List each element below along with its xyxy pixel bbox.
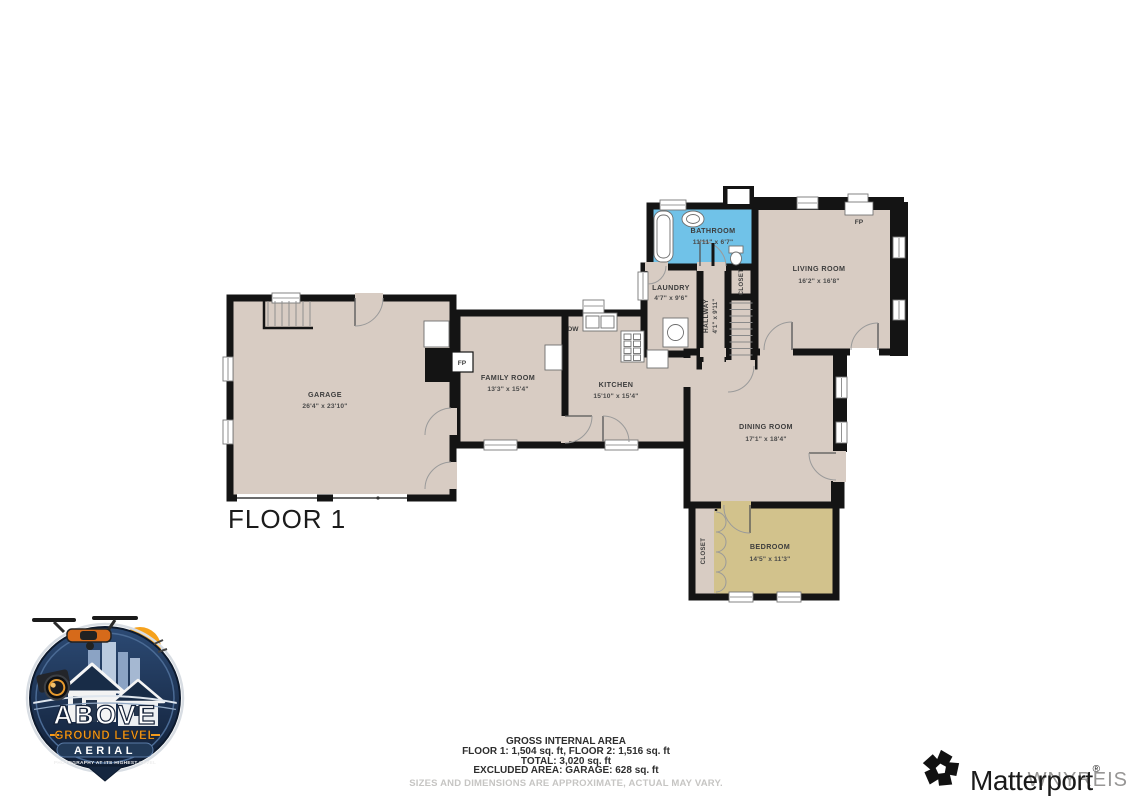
dims-laundry: 4'7" x 9'6" bbox=[654, 295, 688, 302]
label-hallway: HALLWAY bbox=[703, 299, 710, 333]
matterport-logo: Matterport® bbox=[920, 748, 1099, 800]
window bbox=[893, 300, 905, 320]
kitchen-sink bbox=[583, 313, 617, 331]
label-garage: GARAGE bbox=[308, 390, 342, 399]
dims-garage: 26'4" x 23'10" bbox=[302, 403, 347, 410]
agl-word-sub: GROUND LEVEL bbox=[55, 730, 156, 742]
agl-word-aerial: AERIAL bbox=[74, 745, 136, 757]
dims-bedroom: 14'5" x 11'3" bbox=[750, 556, 791, 563]
area-summary: GROSS INTERNAL AREA FLOOR 1: 1,504 sq. f… bbox=[306, 737, 826, 789]
matterport-pinwheel-icon bbox=[920, 748, 962, 790]
garage-door-wall bbox=[237, 494, 407, 502]
washer bbox=[663, 318, 688, 347]
toilet bbox=[729, 246, 743, 265]
label-closet-hall: CLOSET bbox=[739, 269, 745, 296]
label-family: FAMILY ROOM bbox=[481, 373, 535, 382]
summary-disclaimer: SIZES AND DIMENSIONS ARE APPROXIMATE, AC… bbox=[306, 779, 826, 789]
window bbox=[638, 272, 648, 300]
window bbox=[223, 357, 233, 381]
svg-text:FP: FP bbox=[855, 219, 864, 226]
floorplan-page: FP FP bbox=[0, 0, 1132, 800]
svg-text:FP: FP bbox=[458, 360, 467, 367]
dims-bathroom: 11'11" x 6'7" bbox=[693, 239, 734, 246]
dims-living: 16'2" x 16'8" bbox=[798, 278, 839, 285]
dims-hallway: 4'1" x 9'11" bbox=[712, 299, 719, 334]
window bbox=[583, 300, 604, 313]
summary-excluded: EXCLUDED AREA: GARAGE: 628 sq. ft bbox=[306, 766, 826, 776]
window bbox=[729, 592, 753, 602]
room-bedroom-fill bbox=[716, 509, 833, 594]
dims-dining: 17'1" x 18'4" bbox=[745, 436, 786, 443]
label-bathroom: BATHROOM bbox=[691, 226, 736, 235]
window bbox=[660, 200, 686, 210]
dims-family: 13'3" x 15'4" bbox=[487, 386, 528, 393]
fridge bbox=[647, 350, 668, 368]
label-kitchen: KITCHEN bbox=[599, 380, 634, 389]
label-laundry: LAUNDRY bbox=[652, 283, 690, 292]
window bbox=[605, 440, 638, 450]
registered-mark: ® bbox=[1093, 764, 1100, 775]
stove bbox=[621, 331, 644, 362]
window bbox=[777, 592, 801, 602]
window bbox=[836, 422, 847, 443]
fireplace-family: FP bbox=[452, 352, 473, 372]
garage-utility bbox=[424, 321, 449, 347]
window bbox=[836, 377, 847, 398]
matterport-name: Matterport bbox=[970, 765, 1093, 796]
label-dishwasher: DW bbox=[568, 326, 580, 333]
bathtub bbox=[654, 211, 673, 262]
window bbox=[797, 197, 818, 209]
label-living: LIVING ROOM bbox=[793, 264, 846, 273]
agl-tagline: PHOTOGRAPHY AT ITS HIGHEST LEVEL bbox=[54, 760, 156, 766]
agl-word-main: ABOVE bbox=[53, 700, 157, 730]
room-stairs bbox=[728, 297, 754, 366]
dims-kitchen: 15'10" x 15'4" bbox=[593, 393, 638, 400]
label-closet-bedroom: CLOSET bbox=[701, 538, 707, 565]
floor-title: FLOOR 1 bbox=[228, 504, 346, 534]
bathroom-sink bbox=[682, 211, 704, 227]
window bbox=[484, 440, 517, 450]
window bbox=[223, 420, 233, 444]
window bbox=[893, 237, 905, 258]
label-dining: DINING ROOM bbox=[739, 422, 793, 431]
agl-logo: ABOVE GROUND LEVEL AERIAL PHOTOGRAPHY AT… bbox=[12, 596, 202, 792]
matterport-wordmark: Matterport® bbox=[970, 748, 1099, 800]
family-cabinet bbox=[545, 345, 562, 370]
label-bedroom: BEDROOM bbox=[750, 542, 790, 551]
